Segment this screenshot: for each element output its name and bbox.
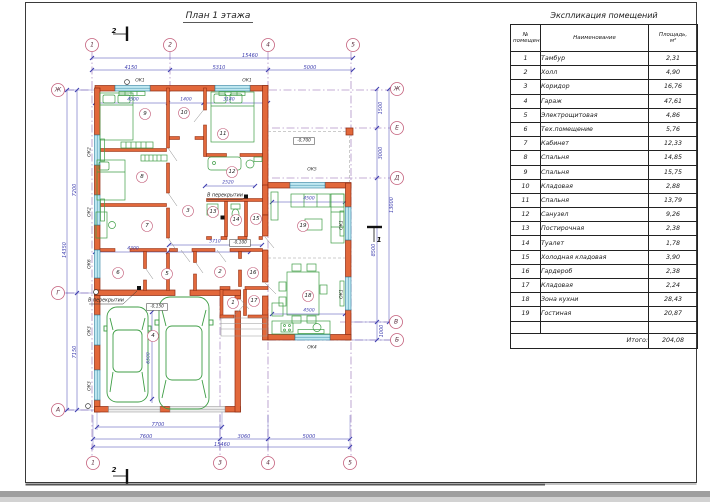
garage-cars: [104, 297, 213, 409]
cell-num: 15: [511, 250, 541, 264]
cell-area: 2,31: [649, 52, 698, 66]
axis-bottom-5: 5: [348, 460, 352, 467]
dim-label: 7200: [72, 184, 78, 197]
window-tag: ОК3: [87, 381, 93, 391]
cell-name: Тех.помещение: [541, 122, 649, 136]
room-number-3: 3: [186, 208, 190, 214]
cell-num: 14: [511, 236, 541, 250]
cell-num: 2: [511, 66, 541, 80]
room-number-19: 19: [300, 223, 307, 229]
table-row: 6Тех.помещение5,76: [511, 122, 698, 136]
elevation-mark: -0,100: [233, 240, 247, 246]
window-tag: ОК1: [339, 289, 345, 299]
table-row: 18Зона кухни28,43: [511, 293, 698, 307]
empty-cell: [511, 321, 541, 333]
cell-area: 2,38: [649, 222, 698, 236]
section-mark-label: 2: [112, 27, 117, 35]
cell-name: Холодная кладовая: [541, 250, 649, 264]
table-row: 5Электрощитовая4,86: [511, 108, 698, 122]
cell-area: 4,90: [649, 66, 698, 80]
cell-num: 11: [511, 193, 541, 207]
cell-name: Кладовая: [541, 279, 649, 293]
cell-name: Спальня: [541, 165, 649, 179]
room-number-8: 8: [140, 174, 144, 180]
dim-label: 4500: [303, 308, 315, 314]
cell-num: 9: [511, 165, 541, 179]
plan-title: План 1 этажа: [186, 11, 251, 21]
axis-bottom-1: 1: [91, 460, 95, 467]
cell-name: Зона кухни: [541, 293, 649, 307]
table-row: 12Санузел9,26: [511, 208, 698, 222]
cell-name: Коридор: [541, 80, 649, 94]
section-mark-label: 2: [112, 466, 117, 474]
total-label: Итого:: [511, 333, 649, 348]
dim-label: 1000: [379, 325, 385, 338]
cell-num: 10: [511, 179, 541, 193]
dim-label: 4500: [303, 196, 315, 202]
room-number-1: 1: [231, 300, 235, 306]
cell-num: 17: [511, 279, 541, 293]
cell-name: Санузел: [541, 208, 649, 222]
cell-area: 5,76: [649, 122, 698, 136]
cell-num: 3: [511, 80, 541, 94]
cell-name: Спальня: [541, 193, 649, 207]
table-row: 14Туалет1,78: [511, 236, 698, 250]
slab-note: В перекрытии: [207, 193, 243, 199]
cell-num: 6: [511, 122, 541, 136]
table-row: 7Кабинет12,33: [511, 137, 698, 151]
cell-num: 5: [511, 108, 541, 122]
cell-name: Электрощитовая: [541, 108, 649, 122]
table-row: 3Коридор16,76: [511, 80, 698, 94]
axis-left-zh: Ж: [54, 87, 62, 94]
axis-bottom-3: 3: [218, 460, 222, 467]
cell-name: Туалет: [541, 236, 649, 250]
window-tag: ОК1: [242, 78, 252, 84]
cell-num: 8: [511, 151, 541, 165]
total-row: Итого: 204,08: [511, 333, 698, 348]
empty-cell: [541, 321, 649, 333]
table-row: 9Спальня15,75: [511, 165, 698, 179]
dim-label: 7700: [152, 422, 165, 428]
cell-name: Спальня: [541, 151, 649, 165]
schedule-header-row: № помещения Наименование Площадь, м²: [511, 25, 698, 52]
table-row: 4Гараж47,61: [511, 94, 698, 108]
room-number-14: 14: [233, 217, 240, 223]
room-number-7: 7: [145, 223, 149, 229]
room-number-2: 2: [218, 269, 222, 275]
cell-name: Постирочная: [541, 222, 649, 236]
dim-label: 4500: [127, 97, 139, 103]
table-row: 16Гардероб2,38: [511, 264, 698, 278]
elevation-mark: -0,700: [297, 138, 311, 144]
cell-area: 13,79: [649, 193, 698, 207]
axis-right-v: В: [394, 319, 398, 326]
cell-name: Холл: [541, 66, 649, 80]
cell-num: 13: [511, 222, 541, 236]
room-number-11: 11: [220, 131, 227, 137]
cell-area: 3,90: [649, 250, 698, 264]
room-number-18: 18: [305, 293, 312, 299]
cell-num: 4: [511, 94, 541, 108]
dim-label: 5710: [209, 239, 221, 245]
cell-name: Гардероб: [541, 264, 649, 278]
cell-num: 12: [511, 208, 541, 222]
cell-name: Кладовая: [541, 179, 649, 193]
dim-label: 7600: [140, 434, 153, 440]
table-row: 2Холл4,90: [511, 66, 698, 80]
empty-cell: [649, 321, 698, 333]
axis-top-2: 2: [168, 42, 172, 49]
room-number-6: 6: [116, 270, 120, 276]
table-row: 17Кладовая2,24: [511, 279, 698, 293]
axis-top-4: 4: [266, 42, 270, 49]
cell-area: 4,86: [649, 108, 698, 122]
cell-area: 2,88: [649, 179, 698, 193]
room-number-12: 12: [229, 169, 236, 175]
cell-area: 1,78: [649, 236, 698, 250]
window-tag: ОК2: [87, 207, 93, 217]
cell-area: 14,85: [649, 151, 698, 165]
cell-name: Тамбур: [541, 52, 649, 66]
cell-num: 18: [511, 293, 541, 307]
cell-area: 28,43: [649, 293, 698, 307]
room-number-10: 10: [181, 110, 188, 116]
window-tag: ОК6: [87, 259, 93, 269]
cell-name: Гостиная: [541, 307, 649, 321]
header-room-name: Наименование: [541, 25, 649, 52]
dim-label: 15460: [214, 442, 230, 448]
dim-label: 6500: [146, 352, 152, 364]
slab-note: В перекрытии: [88, 298, 124, 304]
cell-area: 2,24: [649, 279, 698, 293]
axis-left-a: А: [55, 407, 60, 414]
window-tag: ОК2: [87, 147, 93, 157]
axis-top-1: 1: [90, 42, 94, 49]
schedule-table: № помещения Наименование Площадь, м² 1Та…: [510, 24, 698, 349]
section-mark-label: 1: [377, 236, 382, 244]
dim-label: 5000: [303, 434, 316, 440]
dim-label: 3140: [223, 97, 235, 103]
drawing-page: План 1 этажа12451345ЖГАЖЕДВБ154604150531…: [0, 0, 710, 502]
cell-area: 2,38: [649, 264, 698, 278]
cell-area: 16,76: [649, 80, 698, 94]
room-number-9: 9: [143, 111, 147, 117]
dim-label: 13000: [389, 197, 395, 213]
cell-area: 15,75: [649, 165, 698, 179]
table-row: 11Спальня13,79: [511, 193, 698, 207]
dim-label: 4150: [125, 65, 138, 71]
dimension-lines-layer: [63, 56, 392, 450]
header-room-area: Площадь, м²: [649, 25, 698, 52]
cell-area: 12,33: [649, 137, 698, 151]
dim-label: 2520: [222, 180, 234, 186]
axis-top-5: 5: [351, 42, 355, 49]
dim-label: 8500: [371, 244, 377, 257]
table-row: 1Тамбур2,31: [511, 52, 698, 66]
window-tag: ОК4: [307, 345, 317, 351]
room-number-17: 17: [251, 298, 258, 304]
cell-num: 7: [511, 137, 541, 151]
room-number-16: 16: [250, 270, 257, 276]
empty-row: [511, 321, 698, 333]
dim-label: 1400: [180, 97, 192, 103]
dim-label: 3060: [238, 434, 251, 440]
table-row: 19Гостиная20,87: [511, 307, 698, 321]
cell-area: 47,61: [649, 94, 698, 108]
dim-label: 5000: [304, 65, 317, 71]
room-number-13: 13: [210, 209, 217, 215]
cell-name: Кабинет: [541, 137, 649, 151]
elevation-mark: -0,150: [150, 304, 164, 310]
dim-label: 1500: [378, 102, 384, 115]
axis-lines-layer: [66, 52, 390, 456]
axis-right-zh: Ж: [393, 86, 401, 93]
total-value: 204,08: [649, 333, 698, 348]
window-tag: ОК5: [307, 167, 317, 173]
cell-num: 1: [511, 52, 541, 66]
axis-right-e: Е: [395, 125, 399, 132]
schedule-title: Экспликация помещений: [510, 7, 698, 24]
window-tag: ОК3: [87, 326, 93, 336]
dim-label: 3000: [378, 147, 384, 160]
room-number-4: 4: [151, 333, 155, 339]
table-row: 8Спальня14,85: [511, 151, 698, 165]
room-number-15: 15: [253, 216, 260, 222]
room-schedule: Экспликация помещений № помещения Наимен…: [510, 7, 698, 349]
dim-label: 7150: [72, 346, 78, 359]
cell-num: 16: [511, 264, 541, 278]
header-room-number: № помещения: [511, 25, 541, 52]
table-row: 15Холодная кладовая3,90: [511, 250, 698, 264]
window-tag: ОК1: [339, 220, 345, 230]
window-tag: ОК1: [135, 78, 145, 84]
cell-area: 20,87: [649, 307, 698, 321]
axis-bottom-4: 4: [266, 460, 270, 467]
dim-label: 14350: [62, 242, 68, 258]
cell-name: Гараж: [541, 94, 649, 108]
dim-label: 15460: [242, 53, 258, 59]
table-row: 13Постирочная2,38: [511, 222, 698, 236]
dim-label: 5310: [213, 65, 226, 71]
dim-label: 4300: [127, 246, 139, 252]
cell-num: 19: [511, 307, 541, 321]
cell-area: 9,26: [649, 208, 698, 222]
axis-right-b: Б: [395, 337, 399, 344]
table-row: 10Кладовая2,88: [511, 179, 698, 193]
axis-right-d: Д: [394, 175, 400, 182]
room-number-5: 5: [165, 271, 169, 277]
